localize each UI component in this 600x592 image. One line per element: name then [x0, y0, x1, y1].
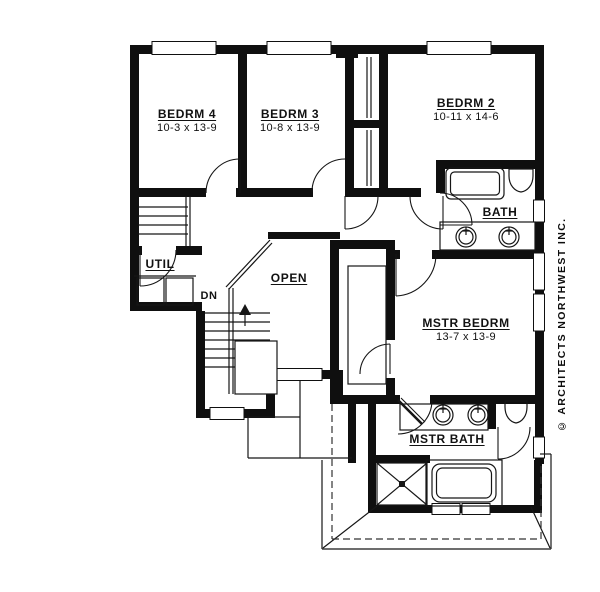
room-name: UTIL — [145, 257, 174, 271]
room-name: BEDRM 3 — [260, 107, 320, 121]
room-label-bedrm2: BEDRM 2 10-11 x 14-6 — [433, 96, 499, 123]
room-name: BATH — [483, 205, 518, 219]
floor-plan: BEDRM 4 10-3 x 13-9 BEDRM 3 10-8 x 13-9 … — [0, 0, 600, 592]
room-dims: 10-3 x 13-9 — [157, 122, 217, 134]
vanity — [440, 222, 535, 250]
room-dims: 10-11 x 14-6 — [433, 111, 499, 123]
master-bath-fixtures — [377, 401, 527, 506]
staircase — [205, 288, 277, 394]
washer-dryer — [134, 276, 196, 305]
toilet — [505, 401, 527, 423]
room-label-bedrm3: BEDRM 3 10-8 x 13-9 — [260, 107, 320, 134]
floor-plan-drawing — [0, 0, 600, 592]
stair-up-arrow — [239, 304, 251, 315]
room-dims: 10-8 x 13-9 — [260, 122, 320, 134]
room-label-open: OPEN — [271, 271, 307, 285]
room-name: MSTR BATH — [409, 432, 484, 446]
tub-platform — [426, 460, 502, 506]
bathtub — [432, 464, 496, 502]
linen-closet — [138, 196, 190, 246]
room-dims: 13-7 x 13-9 — [422, 331, 509, 343]
bathtub — [446, 168, 504, 199]
stair-down-label: DN — [201, 290, 218, 302]
room-label-util: UTIL — [145, 257, 174, 271]
room-name: BEDRM 2 — [433, 96, 499, 110]
room-label-bath: BATH — [483, 205, 518, 219]
room-label-mstr-bath: MSTR BATH — [409, 432, 484, 446]
toilet — [509, 169, 533, 192]
room-name: MSTR BEDRM — [422, 316, 509, 330]
walkin-closet-shelf — [348, 266, 386, 384]
room-name: OPEN — [271, 271, 307, 285]
room-label-mstr-bedrm: MSTR BEDRM 13-7 x 13-9 — [422, 316, 509, 343]
room-name: BEDRM 4 — [157, 107, 217, 121]
room-label-bedrm4: BEDRM 4 10-3 x 13-9 — [157, 107, 217, 134]
open-railing — [226, 240, 272, 289]
copyright-text: © ARCHITECTS NORTHWEST INC. — [552, 200, 572, 450]
